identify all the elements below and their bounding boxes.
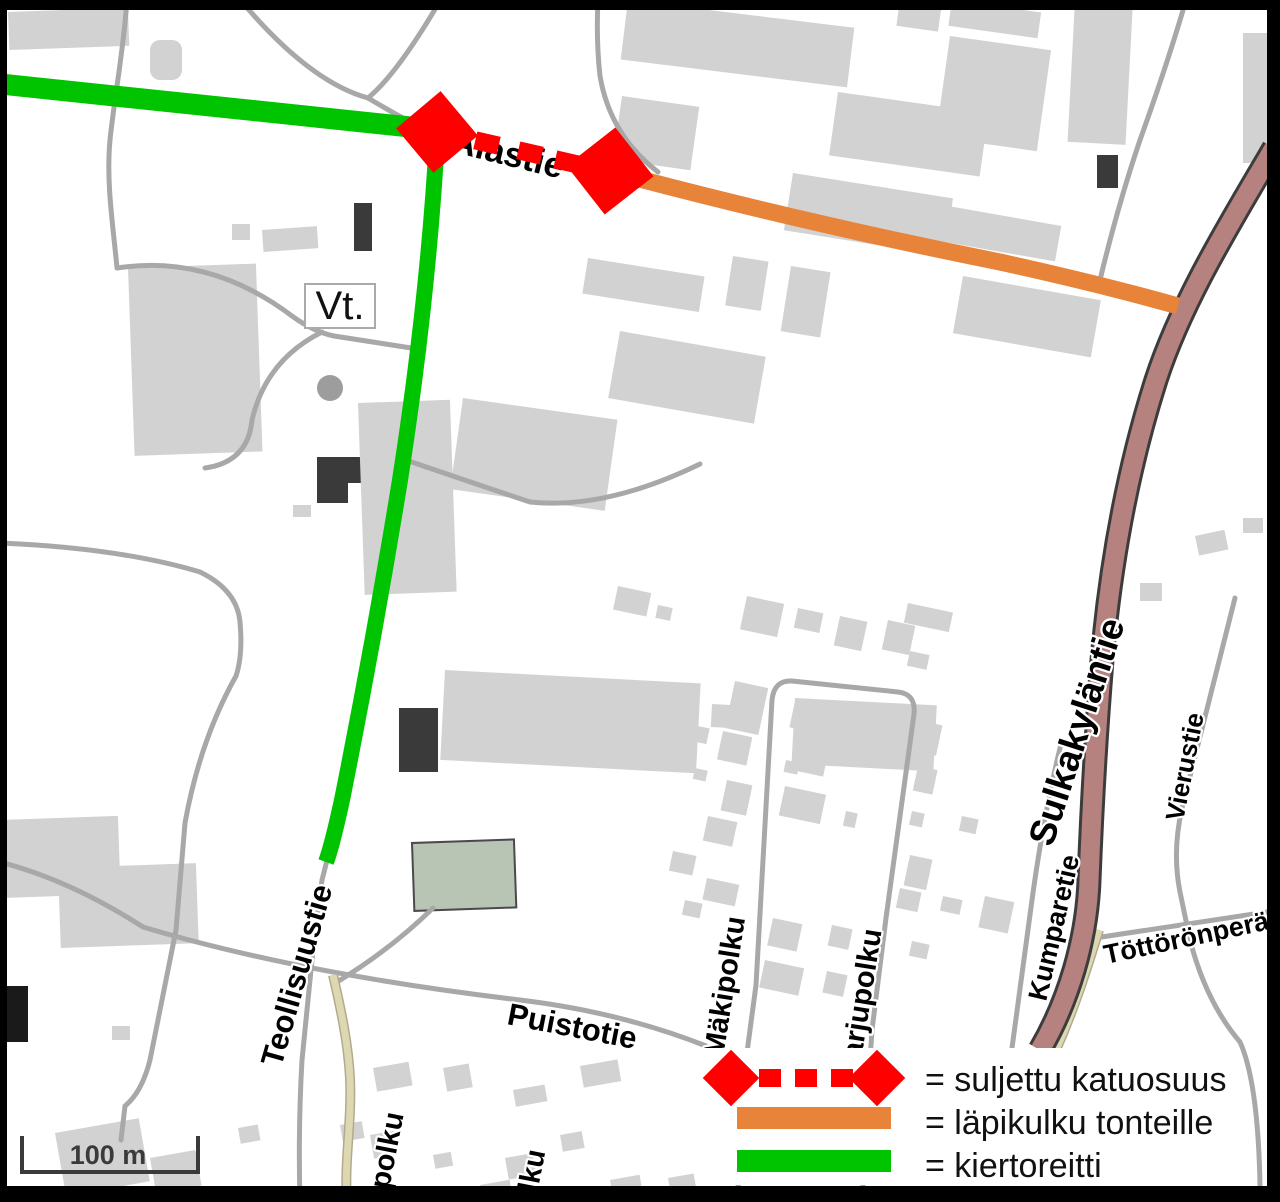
building-round <box>317 375 343 401</box>
legend-swatch-detour <box>737 1150 891 1172</box>
building <box>112 1026 130 1040</box>
legend-swatch-through-access <box>737 1107 891 1129</box>
scale-bar-label: 100 m <box>70 1140 147 1170</box>
road-sign-vt: Vt. <box>305 284 375 328</box>
detour-map: Alastie Teollisuustie Puistotie Mäkipolk… <box>0 0 1280 1202</box>
road-sign-text: Vt. <box>316 284 365 328</box>
building <box>232 224 250 240</box>
building-dark <box>1097 155 1118 188</box>
legend-dash-icon <box>759 1069 781 1087</box>
building <box>1068 0 1133 145</box>
building <box>238 1125 260 1144</box>
building <box>150 40 182 80</box>
legend-dash-icon <box>795 1069 817 1087</box>
building-dark <box>354 203 372 251</box>
legend: = suljettu katuosuus = läpikulku tonteil… <box>700 1048 1233 1185</box>
legend-label-closed-section: = suljettu katuosuus <box>925 1061 1226 1099</box>
building <box>128 264 262 456</box>
building <box>440 670 700 773</box>
building <box>262 226 318 252</box>
building <box>443 1063 473 1091</box>
building <box>293 505 311 517</box>
building-dark <box>399 708 438 772</box>
legend-label-detour: = kiertoreitti <box>925 1147 1102 1185</box>
legend-label-through-access: = läpikulku tonteille <box>925 1104 1213 1142</box>
building <box>8 8 129 50</box>
building-green <box>412 839 516 911</box>
